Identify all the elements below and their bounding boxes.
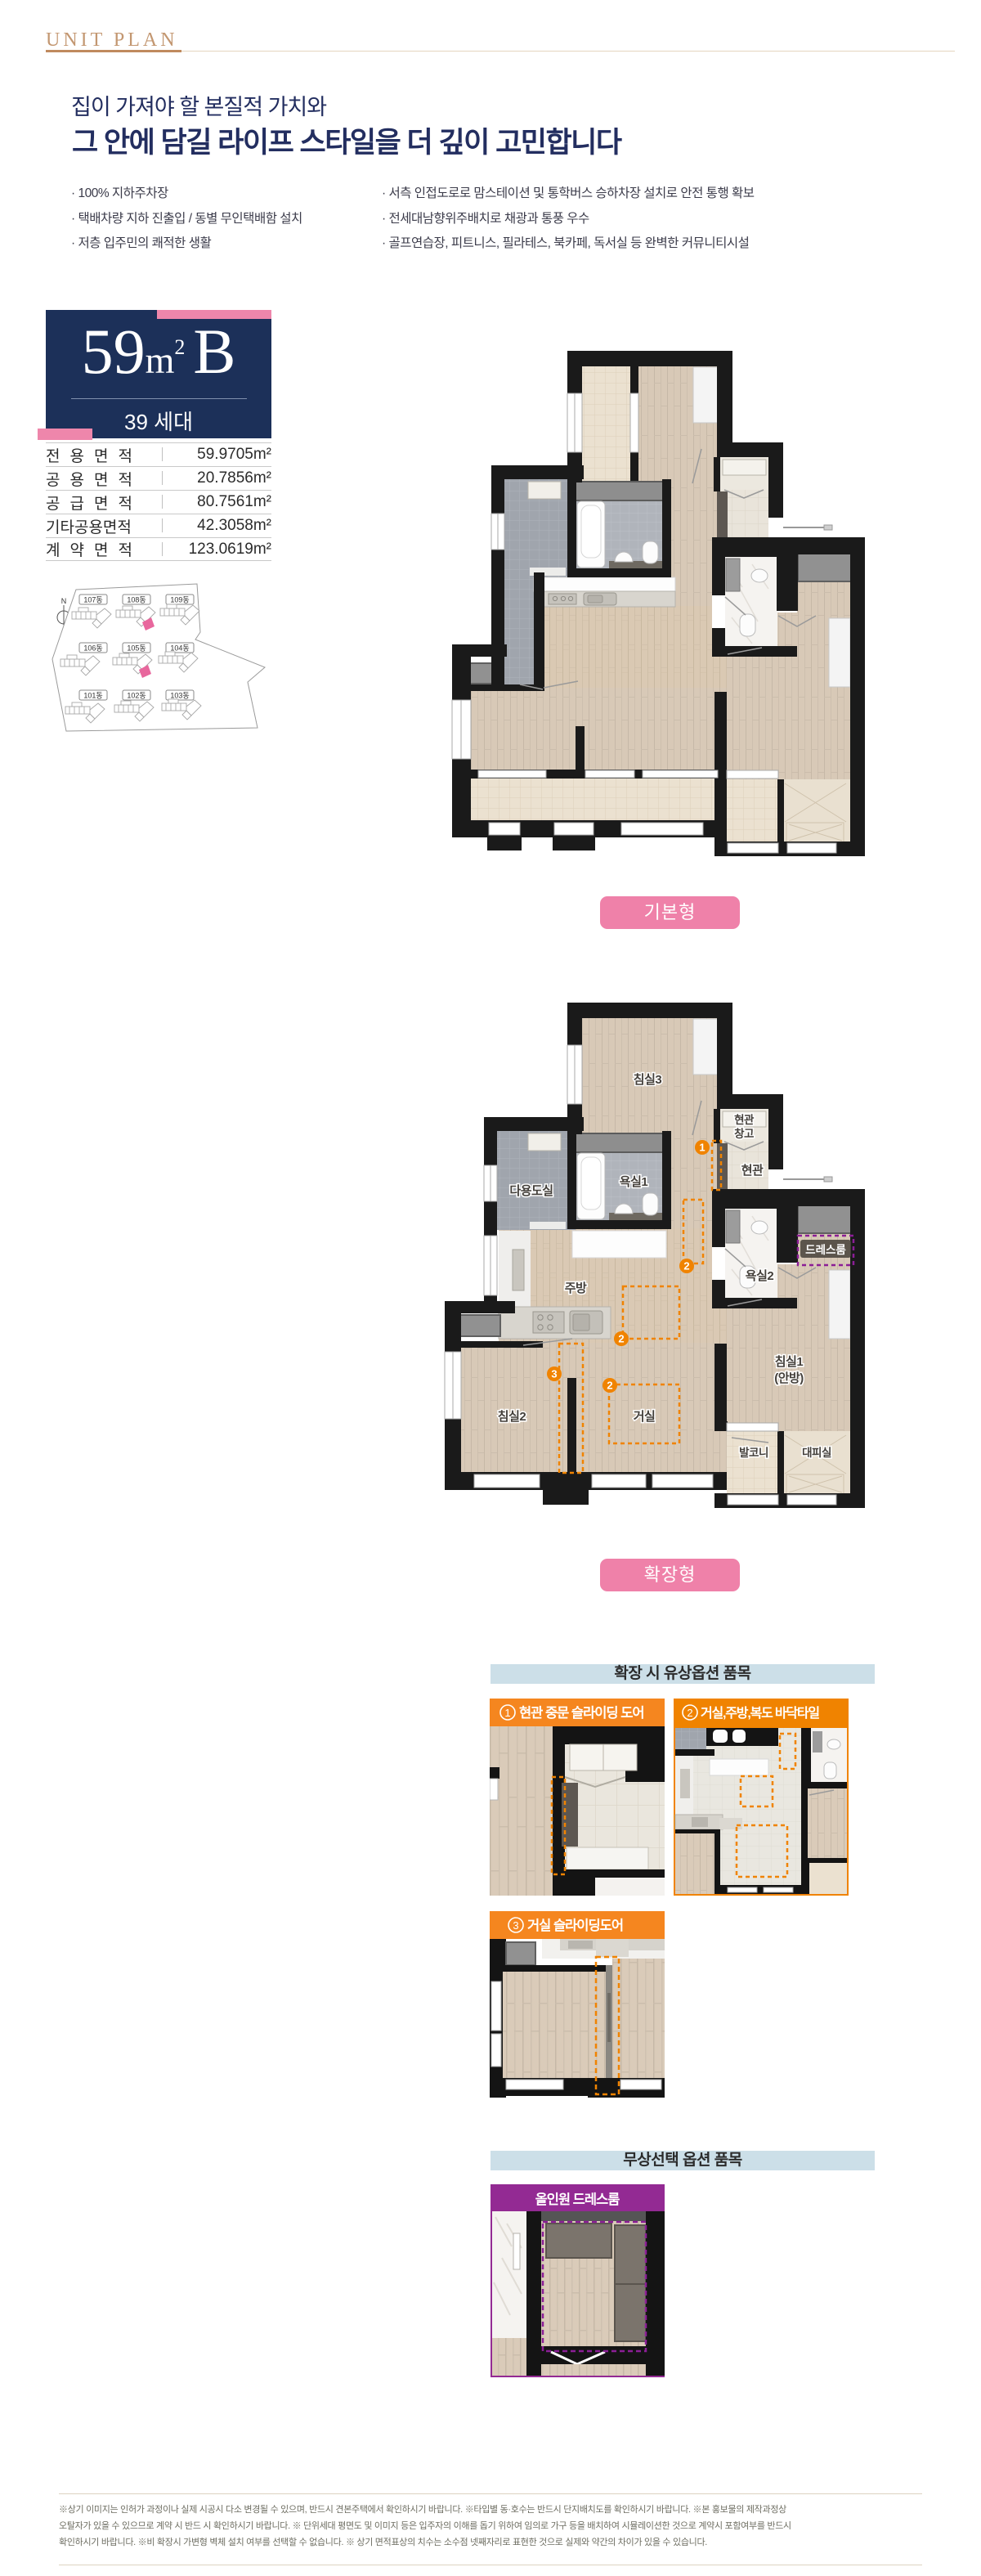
svg-text:2: 2 (687, 1707, 692, 1719)
svg-text:1: 1 (699, 1142, 705, 1154)
svg-text:102동: 102동 (127, 692, 146, 700)
svg-text:현관: 현관 (741, 1164, 764, 1178)
svg-text:N: N (61, 597, 67, 605)
svg-text:108동: 108동 (127, 596, 146, 604)
svg-text:3: 3 (513, 1919, 518, 1932)
svg-text:105동: 105동 (127, 644, 146, 653)
svg-text:주방: 주방 (565, 1281, 587, 1295)
svg-text:드레스룸: 드레스룸 (805, 1244, 846, 1256)
svg-text:107동: 107동 (83, 596, 102, 604)
svg-text:2: 2 (683, 1260, 689, 1272)
svg-text:3: 3 (551, 1368, 557, 1380)
svg-text:침실1: 침실1 (775, 1355, 804, 1369)
svg-text:발코니: 발코니 (739, 1446, 768, 1459)
svg-text:현관 중문 슬라이딩 도어: 현관 중문 슬라이딩 도어 (519, 1705, 644, 1721)
svg-text:대피실: 대피실 (802, 1447, 831, 1459)
svg-text:올인원 드레스룸: 올인원 드레스룸 (535, 2192, 620, 2207)
svg-text:106동: 106동 (83, 644, 102, 653)
svg-text:(안방): (안방) (774, 1371, 804, 1385)
svg-text:거실 슬라이딩도어: 거실 슬라이딩도어 (527, 1918, 623, 1933)
svg-text:거실,주방,복도 바닥타일: 거실,주방,복도 바닥타일 (701, 1706, 819, 1721)
svg-text:1: 1 (504, 1707, 510, 1719)
svg-text:욕실1: 욕실1 (620, 1175, 648, 1189)
svg-text:109동: 109동 (170, 596, 189, 604)
svg-text:욕실2: 욕실2 (746, 1269, 774, 1283)
svg-text:침실3: 침실3 (634, 1073, 662, 1087)
svg-text:101동: 101동 (83, 692, 102, 700)
svg-text:2: 2 (618, 1333, 624, 1345)
svg-text:현관: 현관 (734, 1113, 755, 1126)
svg-text:창고: 창고 (734, 1127, 754, 1140)
svg-text:다용도실: 다용도실 (509, 1184, 553, 1198)
svg-text:거실: 거실 (634, 1410, 656, 1424)
svg-text:2: 2 (607, 1380, 612, 1392)
svg-text:침실2: 침실2 (498, 1410, 526, 1424)
svg-text:103동: 103동 (170, 692, 189, 700)
svg-text:104동: 104동 (170, 644, 189, 653)
